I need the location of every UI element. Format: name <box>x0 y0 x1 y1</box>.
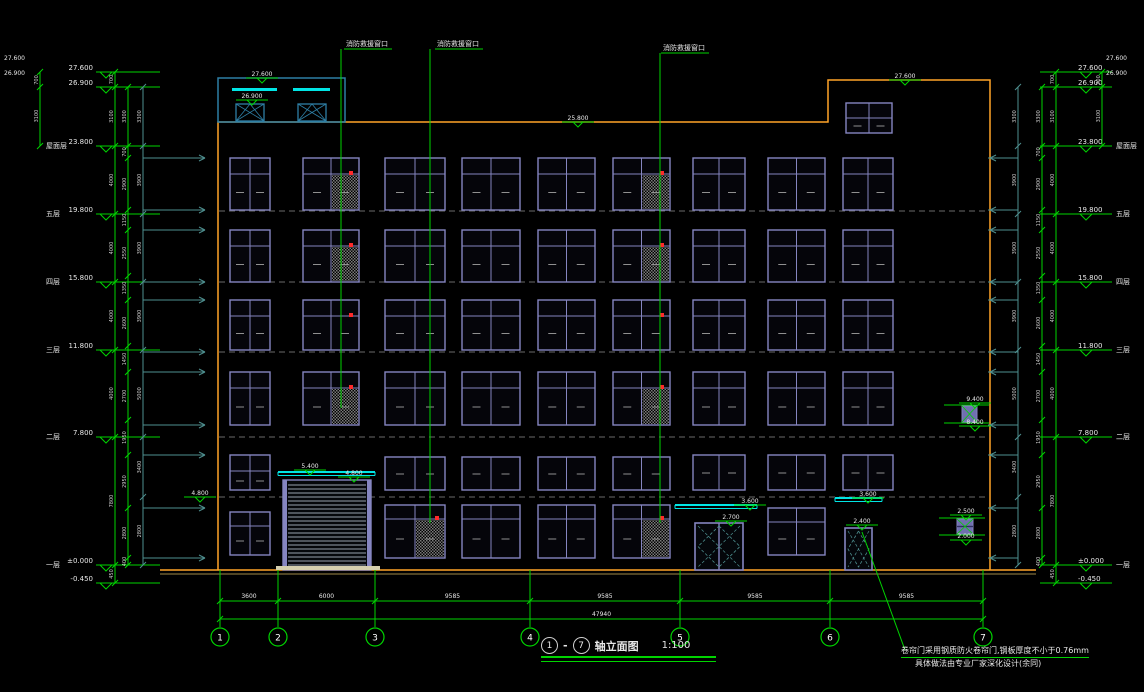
svg-text:23.800: 23.800 <box>69 138 94 146</box>
note-line-1: 卷帘门采用钢质防火卷帘门,钢板厚度不小于0.76mm <box>901 645 1089 658</box>
window <box>462 158 520 210</box>
svg-text:700: 700 <box>109 75 115 85</box>
svg-text:700: 700 <box>34 75 40 85</box>
ground-window <box>613 457 670 490</box>
svg-text:4000: 4000 <box>1050 387 1056 400</box>
svg-text:4000: 4000 <box>109 174 115 187</box>
svg-text:3900: 3900 <box>1012 242 1018 255</box>
ground-window <box>230 455 270 490</box>
svg-text:2900: 2900 <box>1036 178 1042 191</box>
grid-bubble-2: 2 <box>269 628 287 646</box>
svg-text:400: 400 <box>122 557 128 567</box>
svg-text:3400: 3400 <box>1012 461 1018 474</box>
svg-text:±0.000: ±0.000 <box>1078 557 1104 565</box>
note-leader <box>862 532 905 650</box>
svg-text:450: 450 <box>109 569 115 579</box>
window <box>843 158 893 210</box>
svg-text:2.500: 2.500 <box>957 508 974 515</box>
window <box>693 158 745 210</box>
svg-text:4.800: 4.800 <box>345 470 362 477</box>
penthouse-window <box>846 103 892 133</box>
ground-window <box>768 455 825 490</box>
ground-window <box>385 457 445 490</box>
svg-text:2800: 2800 <box>1012 525 1018 538</box>
svg-text:3.600: 3.600 <box>741 498 758 505</box>
svg-text:3300: 3300 <box>1036 110 1042 123</box>
svg-text:三层: 三层 <box>46 346 60 354</box>
svg-text:3: 3 <box>372 634 378 644</box>
dimensions-right: 27.60026.90023.800屋面层19.800五层15.800四层11.… <box>988 55 1137 589</box>
svg-text:±0.000: ±0.000 <box>67 557 93 565</box>
svg-text:25.800: 25.800 <box>568 115 589 122</box>
window <box>768 372 825 425</box>
svg-text:1950: 1950 <box>1036 431 1042 444</box>
svg-text:3900: 3900 <box>137 242 143 255</box>
svg-text:4000: 4000 <box>109 387 115 400</box>
svg-text:3300: 3300 <box>122 110 128 123</box>
title-separator: - <box>563 639 568 652</box>
svg-text:4000: 4000 <box>1050 174 1056 187</box>
svg-text:5.400: 5.400 <box>301 463 318 470</box>
title-underline <box>541 656 716 662</box>
svg-text:3900: 3900 <box>137 174 143 187</box>
svg-text:3900: 3900 <box>1012 310 1018 323</box>
window <box>693 300 745 350</box>
svg-text:2.000: 2.000 <box>957 533 974 540</box>
svg-text:3400: 3400 <box>137 461 143 474</box>
svg-text:26.900: 26.900 <box>1106 70 1127 77</box>
svg-text:屋面层: 屋面层 <box>1116 142 1137 150</box>
svg-text:四层: 四层 <box>1116 278 1130 286</box>
window <box>538 300 595 350</box>
svg-text:15.800: 15.800 <box>1078 274 1103 282</box>
svg-text:26.900: 26.900 <box>69 79 94 87</box>
svg-text:27.600: 27.600 <box>69 64 94 72</box>
svg-text:8.400: 8.400 <box>966 419 983 426</box>
svg-text:3100: 3100 <box>1050 110 1056 123</box>
svg-text:2800: 2800 <box>137 525 143 538</box>
window <box>462 230 520 282</box>
svg-text:2550: 2550 <box>1036 247 1042 260</box>
window <box>303 158 359 210</box>
svg-text:屋面层: 屋面层 <box>46 142 67 150</box>
svg-text:27.600: 27.600 <box>1106 55 1127 62</box>
svg-text:-0.450: -0.450 <box>70 575 93 583</box>
window-grid <box>230 103 893 425</box>
drawing-title: 1 - 7 轴立面图 1:100 <box>541 637 690 654</box>
window <box>843 300 893 350</box>
svg-text:2600: 2600 <box>122 317 128 330</box>
svg-text:9585: 9585 <box>899 593 914 600</box>
svg-text:3900: 3900 <box>137 310 143 323</box>
svg-text:27.600: 27.600 <box>1078 64 1103 72</box>
svg-text:消防救援窗口: 消防救援窗口 <box>663 43 705 52</box>
window <box>538 372 595 425</box>
window <box>693 372 745 425</box>
svg-text:15.800: 15.800 <box>69 274 94 282</box>
svg-text:700: 700 <box>1050 75 1056 85</box>
dimensions-left: 27.60026.90023.800屋面层19.800五层15.800四层11.… <box>4 55 205 589</box>
svg-text:1950: 1950 <box>122 431 128 444</box>
svg-text:2800: 2800 <box>1036 527 1042 540</box>
window <box>303 372 359 425</box>
grid-bubble-4: 4 <box>521 628 539 646</box>
ground-floor <box>230 405 989 570</box>
svg-text:27.600: 27.600 <box>252 71 273 78</box>
window <box>768 158 825 210</box>
canopy <box>675 505 757 509</box>
svg-text:1150: 1150 <box>122 214 128 227</box>
svg-text:3100: 3100 <box>1096 110 1102 123</box>
canopy <box>835 498 882 502</box>
drawing-scale: 1:100 <box>662 640 691 651</box>
cad-viewport[interactable]: 27.60026.90023.800屋面层19.800五层15.800四层11.… <box>0 0 1144 692</box>
svg-text:19.800: 19.800 <box>1078 206 1103 214</box>
window <box>462 300 520 350</box>
window <box>768 230 825 282</box>
svg-text:五层: 五层 <box>46 210 60 218</box>
svg-text:5000: 5000 <box>1012 387 1018 400</box>
svg-text:700: 700 <box>122 147 128 157</box>
ground-window <box>843 455 893 490</box>
grid-bubble-3: 3 <box>366 628 384 646</box>
svg-text:4000: 4000 <box>109 242 115 255</box>
ground-window <box>768 508 825 555</box>
svg-text:一层: 一层 <box>46 561 60 569</box>
svg-text:2.400: 2.400 <box>853 518 870 525</box>
svg-text:4000: 4000 <box>1050 242 1056 255</box>
svg-text:9.400: 9.400 <box>966 396 983 403</box>
window <box>693 230 745 282</box>
axis-bubble-to: 7 <box>573 637 590 654</box>
note-line-2: 具体做法由专业厂家深化设计(余同) <box>901 658 1089 669</box>
svg-text:2: 2 <box>275 634 281 644</box>
svg-text:4.800: 4.800 <box>191 490 208 497</box>
window <box>385 158 445 210</box>
svg-text:3900: 3900 <box>1012 174 1018 187</box>
svg-text:11.800: 11.800 <box>1078 342 1103 350</box>
svg-text:6000: 6000 <box>319 593 334 600</box>
svg-text:五层: 五层 <box>1116 210 1130 218</box>
grid-bubble-6: 6 <box>821 628 839 646</box>
svg-text:2700: 2700 <box>122 390 128 403</box>
svg-text:1350: 1350 <box>122 282 128 295</box>
svg-text:消防救援窗口: 消防救援窗口 <box>346 39 388 48</box>
svg-text:1450: 1450 <box>122 353 128 366</box>
ground-window <box>230 512 270 555</box>
window <box>613 300 670 350</box>
svg-text:7.800: 7.800 <box>73 429 93 437</box>
ground-window <box>538 505 595 558</box>
window <box>538 230 595 282</box>
window <box>538 158 595 210</box>
window <box>385 372 445 425</box>
svg-text:2700: 2700 <box>1036 390 1042 403</box>
svg-text:三层: 三层 <box>1116 346 1130 354</box>
window <box>230 158 270 210</box>
svg-text:700: 700 <box>1096 75 1102 85</box>
svg-text:27.600: 27.600 <box>895 73 916 80</box>
roller-shutter-door <box>276 480 380 570</box>
svg-text:7800: 7800 <box>109 495 115 508</box>
svg-text:4000: 4000 <box>1050 310 1056 323</box>
svg-text:7800: 7800 <box>1050 495 1056 508</box>
svg-text:3300: 3300 <box>1012 110 1018 123</box>
window <box>843 230 893 282</box>
ground-window <box>693 455 745 490</box>
svg-text:9585: 9585 <box>597 593 612 600</box>
window <box>230 230 270 282</box>
svg-text:700: 700 <box>1036 147 1042 157</box>
svg-text:二层: 二层 <box>46 433 60 441</box>
title-text: 轴立面图 <box>595 638 639 654</box>
svg-text:2950: 2950 <box>122 475 128 488</box>
ground-window <box>385 505 445 558</box>
svg-text:4000: 4000 <box>109 310 115 323</box>
svg-text:9585: 9585 <box>747 593 762 600</box>
svg-text:2950: 2950 <box>1036 475 1042 488</box>
ground-window <box>462 505 520 558</box>
svg-text:26.900: 26.900 <box>242 93 263 100</box>
svg-text:3100: 3100 <box>109 110 115 123</box>
svg-text:四层: 四层 <box>46 278 60 286</box>
ground-window <box>538 457 595 490</box>
svg-text:2800: 2800 <box>122 527 128 540</box>
svg-text:7.800: 7.800 <box>1078 429 1098 437</box>
window <box>385 230 445 282</box>
svg-text:二层: 二层 <box>1116 433 1130 441</box>
window <box>385 300 445 350</box>
window <box>768 300 825 350</box>
window <box>303 300 359 350</box>
svg-text:1150: 1150 <box>1036 214 1042 227</box>
axis-bubble-from: 1 <box>541 637 558 654</box>
svg-text:27.600: 27.600 <box>4 55 25 62</box>
svg-text:1350: 1350 <box>1036 282 1042 295</box>
svg-text:9585: 9585 <box>445 593 460 600</box>
grid-bubble-1: 1 <box>211 628 229 646</box>
ground-window <box>462 457 520 490</box>
window <box>230 372 270 425</box>
axis-grid: 479401360026000395854958559585695857 <box>211 570 992 646</box>
svg-text:1: 1 <box>217 634 223 644</box>
svg-text:6: 6 <box>827 634 833 644</box>
svg-text:3300: 3300 <box>137 110 143 123</box>
svg-text:5000: 5000 <box>137 387 143 400</box>
svg-text:3600: 3600 <box>241 593 256 600</box>
svg-text:-0.450: -0.450 <box>1078 575 1101 583</box>
window <box>843 372 893 425</box>
door-note: 卷帘门采用钢质防火卷帘门,钢板厚度不小于0.76mm 具体做法由专业厂家深化设计… <box>901 645 1089 669</box>
svg-text:2900: 2900 <box>122 178 128 191</box>
window <box>613 158 670 210</box>
elevation-drawing-canvas[interactable]: 27.60026.90023.800屋面层19.800五层15.800四层11.… <box>0 0 1144 692</box>
svg-text:7: 7 <box>980 634 986 644</box>
window <box>462 372 520 425</box>
svg-text:2.700: 2.700 <box>722 514 739 521</box>
grid-bubble-7: 7 <box>974 628 992 646</box>
svg-text:26.900: 26.900 <box>4 70 25 77</box>
window <box>303 230 359 282</box>
window <box>613 230 670 282</box>
svg-text:19.800: 19.800 <box>69 206 94 214</box>
svg-text:450: 450 <box>1050 569 1056 579</box>
svg-text:4: 4 <box>527 634 533 644</box>
svg-text:3.600: 3.600 <box>859 491 876 498</box>
svg-text:2600: 2600 <box>1036 317 1042 330</box>
window <box>230 300 270 350</box>
svg-text:11.800: 11.800 <box>69 342 94 350</box>
window <box>613 372 670 425</box>
svg-text:400: 400 <box>1036 557 1042 567</box>
svg-text:一层: 一层 <box>1116 561 1130 569</box>
ground-window <box>613 505 670 558</box>
svg-text:23.800: 23.800 <box>1078 138 1103 146</box>
svg-text:3100: 3100 <box>34 110 40 123</box>
svg-text:2550: 2550 <box>122 247 128 260</box>
svg-text:消防救援窗口: 消防救援窗口 <box>437 39 479 48</box>
entrance-door <box>695 523 743 570</box>
svg-text:1450: 1450 <box>1036 353 1042 366</box>
svg-text:47940: 47940 <box>592 611 611 618</box>
